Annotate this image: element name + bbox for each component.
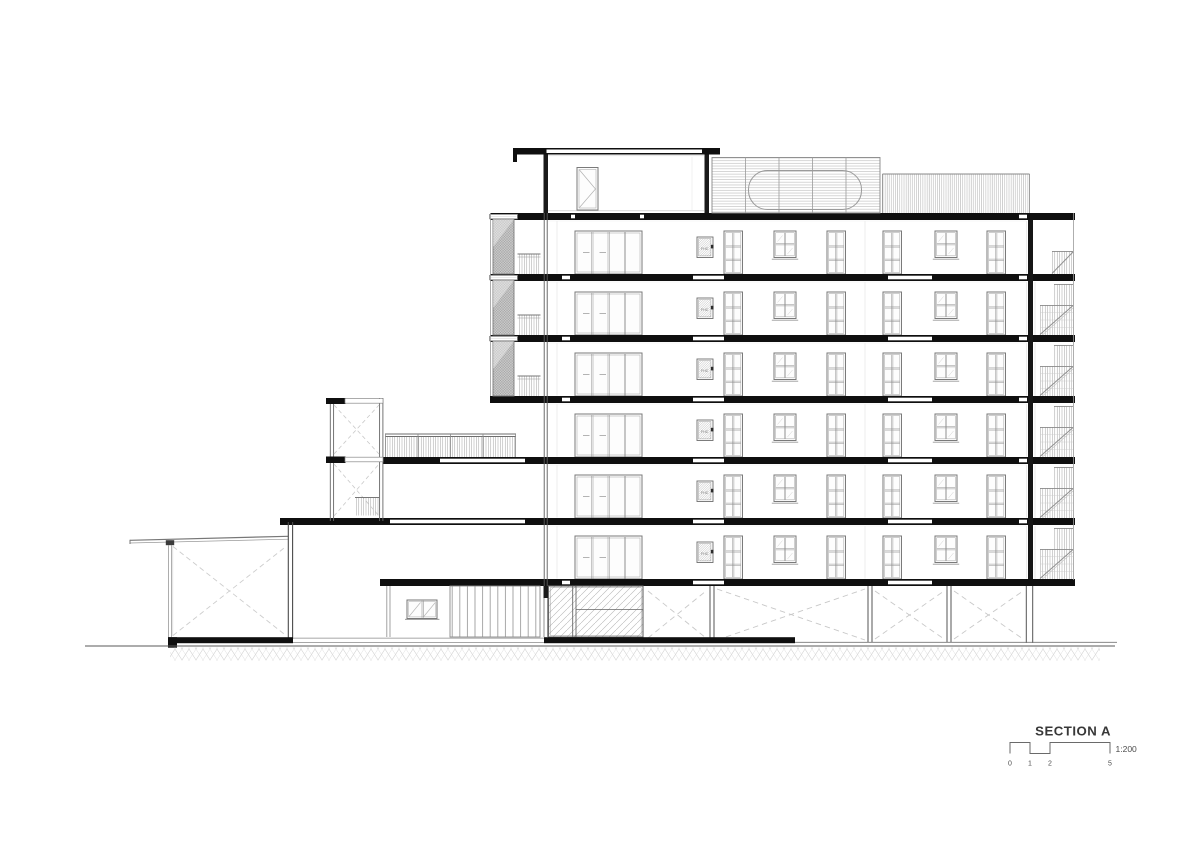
entrance-glazing (549, 586, 644, 637)
building-section-drawing: FHC (0, 0, 1200, 849)
scale-ratio: 1:200 (1116, 744, 1138, 754)
drawing-title: SECTION A (1035, 724, 1111, 739)
podium-lower-railing (355, 498, 380, 516)
podium-roof-railing (385, 434, 516, 457)
roller-shutter (450, 586, 540, 637)
water-tank-louver-screen (712, 158, 880, 214)
stair-top-railing (1052, 251, 1073, 274)
scale-tick-2: 2 (1048, 761, 1052, 768)
scale-tick-0: 0 (1008, 761, 1012, 768)
ground (85, 646, 1115, 661)
drawing-sheet: FHC (0, 0, 1200, 849)
penthouse-door (577, 168, 598, 211)
roof-slatted-screen (883, 174, 1030, 213)
soil-hatch (170, 648, 1100, 661)
scale-tick-1: 1 (1028, 761, 1032, 768)
ground-window (405, 600, 439, 619)
scale-tick-5: 5 (1108, 761, 1112, 768)
